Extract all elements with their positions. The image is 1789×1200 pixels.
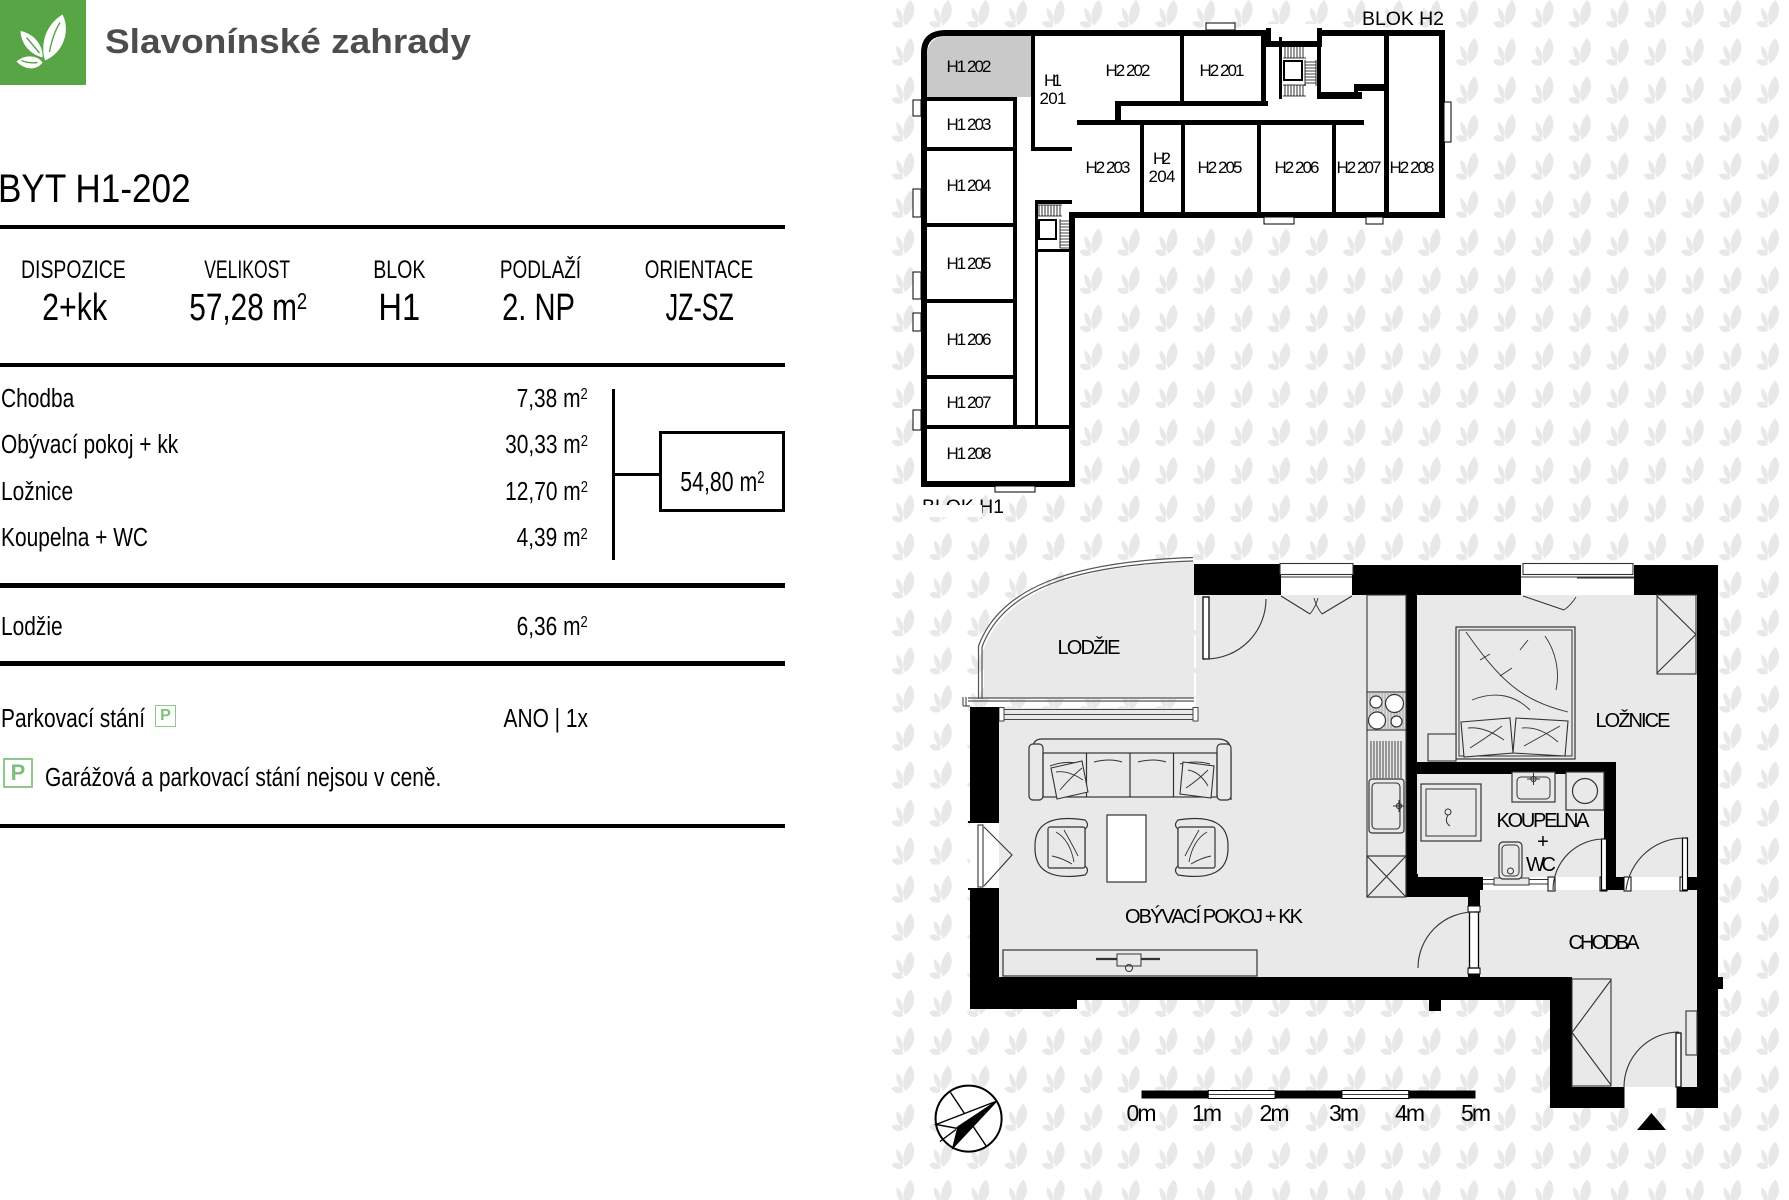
svg-text:H2 203: H2 203 bbox=[1086, 158, 1131, 177]
svg-text:LODŽIE: LODŽIE bbox=[1058, 636, 1121, 659]
svg-text:3m: 3m bbox=[1329, 1100, 1359, 1126]
svg-text:WC: WC bbox=[1526, 854, 1556, 876]
svg-text:H1 208: H1 208 bbox=[947, 444, 992, 463]
svg-text:OBÝVACÍ POKOJ + KK: OBÝVACÍ POKOJ + KK bbox=[1125, 905, 1304, 928]
svg-text:H2 202: H2 202 bbox=[1106, 61, 1151, 80]
svg-text:KOUPELNA: KOUPELNA bbox=[1497, 810, 1591, 832]
svg-text:H2 205: H2 205 bbox=[1198, 158, 1243, 177]
svg-text:CHODBA: CHODBA bbox=[1569, 932, 1641, 954]
svg-text:+: + bbox=[1537, 831, 1549, 853]
svg-text:LOŽNICE: LOŽNICE bbox=[1596, 709, 1671, 732]
svg-text:BLOK H2: BLOK H2 bbox=[1362, 8, 1444, 30]
svg-text:H1 206: H1 206 bbox=[947, 330, 992, 349]
svg-text:H1 205: H1 205 bbox=[947, 254, 992, 273]
svg-text:H2 207: H2 207 bbox=[1337, 158, 1382, 177]
svg-text:0m: 0m bbox=[1127, 1100, 1157, 1126]
svg-text:H2 208: H2 208 bbox=[1390, 158, 1435, 177]
svg-text:H1 204: H1 204 bbox=[947, 176, 992, 195]
svg-text:H2: H2 bbox=[1153, 149, 1171, 168]
svg-text:2m: 2m bbox=[1260, 1100, 1290, 1126]
svg-text:H2 206: H2 206 bbox=[1275, 158, 1320, 177]
svg-text:4m: 4m bbox=[1395, 1100, 1425, 1126]
svg-text:H1: H1 bbox=[1044, 71, 1062, 90]
svg-text:1m: 1m bbox=[1192, 1100, 1222, 1126]
svg-text:5m: 5m bbox=[1461, 1100, 1491, 1126]
svg-text:H1 202: H1 202 bbox=[947, 57, 992, 76]
svg-text:H1 207: H1 207 bbox=[947, 393, 992, 412]
svg-text:201: 201 bbox=[1040, 89, 1067, 108]
svg-text:H2 201: H2 201 bbox=[1200, 61, 1245, 80]
svg-text:204: 204 bbox=[1149, 167, 1176, 186]
svg-text:H1 203: H1 203 bbox=[947, 115, 992, 134]
